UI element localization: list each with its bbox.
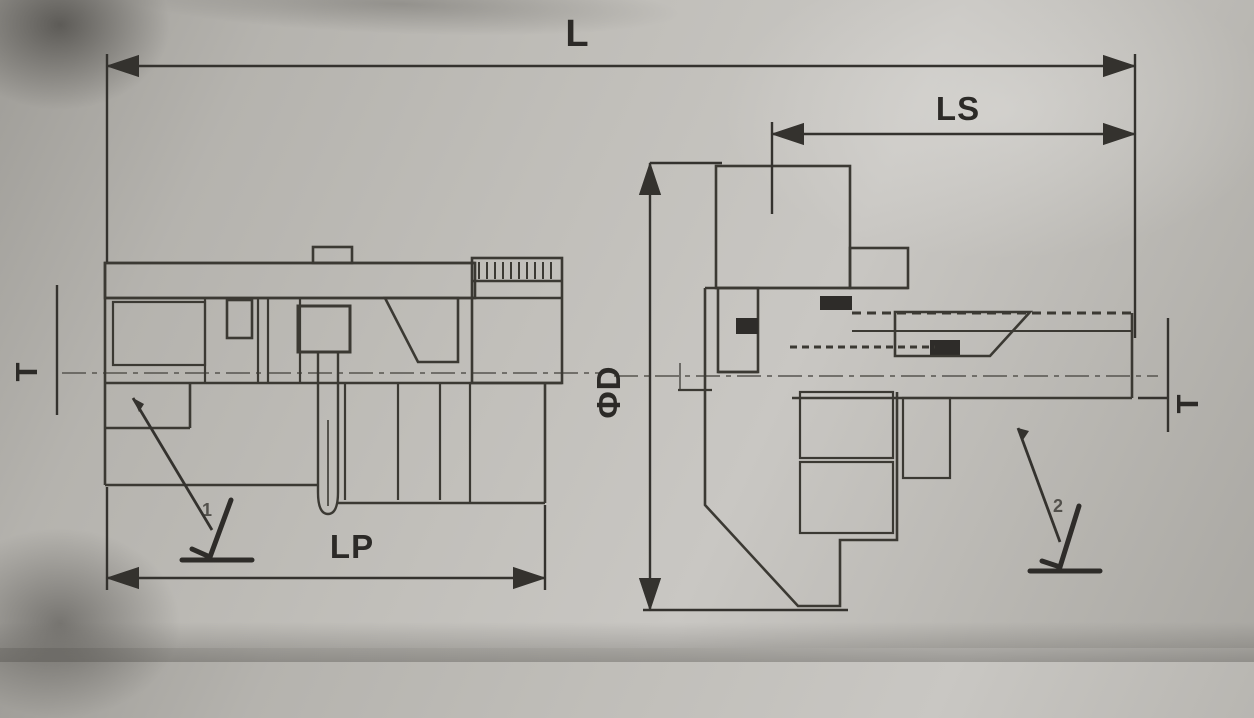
dimension-T-left-label: T	[9, 362, 44, 381]
socket-inner-block-3	[903, 398, 950, 478]
plug-valve-head	[298, 306, 350, 352]
socket-flange-step	[850, 248, 908, 288]
plug-collar-knurl-ticks	[479, 262, 551, 279]
left-view-plug-section	[105, 247, 562, 514]
socket-seal-dark-2	[820, 296, 852, 310]
dimension-T-right	[1138, 318, 1168, 432]
callout-1: 1	[133, 398, 252, 560]
plug-inner-chamber	[113, 302, 205, 365]
socket-seal-dark-1	[736, 318, 758, 334]
plug-body-hatch-band	[105, 263, 475, 298]
socket-seal-wedge	[895, 312, 1030, 356]
coupling-cross-section-drawing: L LS ΦD LP T T 1 2	[0, 0, 1254, 648]
callout-1-number: 1	[202, 500, 212, 520]
plug-seal-wedge	[385, 298, 458, 362]
dimension-D-label: ΦD	[590, 366, 627, 419]
right-view-socket-section	[678, 166, 1132, 606]
callout-1-part	[133, 398, 212, 530]
plug-body-hatch-bump	[313, 247, 352, 263]
callout-2: 2	[1018, 428, 1100, 571]
callout-1-arrowhead	[133, 398, 144, 412]
callout-2-number: 2	[1053, 496, 1063, 516]
plug-collar	[472, 258, 562, 383]
dimension-LS-label: LS	[936, 90, 980, 127]
dimension-LP-label: LP	[330, 528, 374, 565]
socket-flange-nut	[716, 166, 850, 288]
socket-inner-block-2	[800, 462, 893, 533]
dimension-L-label: L	[565, 13, 590, 55]
plug-seal-1	[227, 300, 252, 338]
callout-2-part	[1018, 428, 1060, 542]
socket-inner-block-1	[800, 392, 893, 458]
dimension-T-right-label: T	[1170, 394, 1205, 413]
